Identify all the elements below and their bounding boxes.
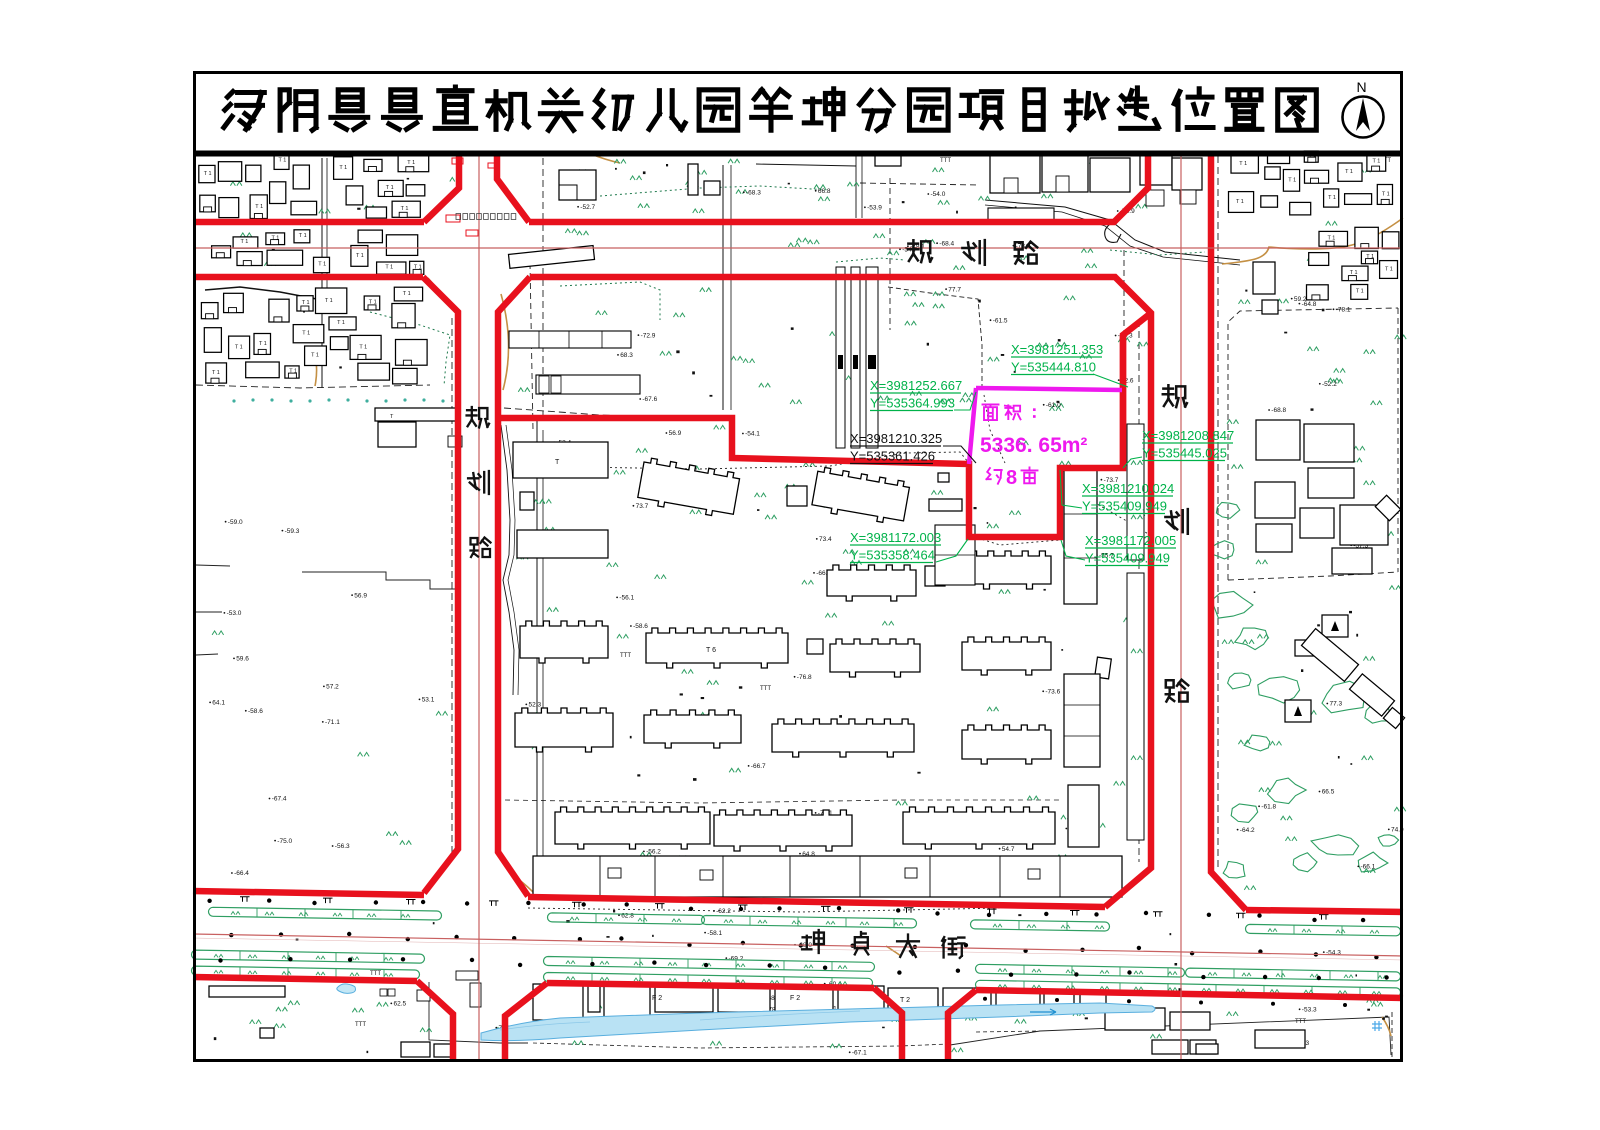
svg-text:-56.1: -56.1 bbox=[619, 595, 634, 602]
svg-text:-52.2: -52.2 bbox=[1322, 381, 1337, 388]
svg-text:77.7: 77.7 bbox=[948, 286, 961, 293]
svg-text:TTT: TTT bbox=[355, 1022, 366, 1028]
svg-text:57.2: 57.2 bbox=[326, 684, 339, 691]
svg-text:-76.8: -76.8 bbox=[797, 674, 812, 681]
svg-text:T 1: T 1 bbox=[299, 233, 307, 239]
svg-text:T 1: T 1 bbox=[325, 298, 333, 304]
svg-text:56.9: 56.9 bbox=[354, 592, 367, 599]
svg-text:T 1: T 1 bbox=[337, 320, 345, 326]
svg-text:-54.0: -54.0 bbox=[931, 191, 946, 198]
svg-text:-71.1: -71.1 bbox=[325, 719, 340, 726]
svg-text:T 1: T 1 bbox=[359, 345, 367, 351]
svg-text:T 1: T 1 bbox=[311, 353, 319, 359]
svg-text:-59.3: -59.3 bbox=[285, 528, 300, 535]
svg-text:-53.3: -53.3 bbox=[1302, 1007, 1317, 1014]
svg-text:66.8: 66.8 bbox=[818, 188, 831, 195]
svg-text:-67.1: -67.1 bbox=[852, 1050, 867, 1057]
svg-text:T 6: T 6 bbox=[706, 647, 716, 654]
svg-text:T 1: T 1 bbox=[1239, 161, 1247, 167]
svg-text:T 1: T 1 bbox=[318, 262, 326, 268]
svg-text:-68.3: -68.3 bbox=[746, 190, 761, 197]
svg-text:T 1: T 1 bbox=[1328, 236, 1336, 242]
svg-text:73.7: 73.7 bbox=[636, 503, 649, 510]
svg-text:5336. 65m²: 5336. 65m² bbox=[980, 434, 1087, 457]
svg-text:T 1: T 1 bbox=[386, 185, 394, 191]
svg-text:T 1: T 1 bbox=[1385, 266, 1393, 272]
svg-text:Y=535358.464: Y=535358.464 bbox=[850, 548, 935, 563]
svg-text:-68.4: -68.4 bbox=[939, 240, 954, 247]
svg-text:T 1: T 1 bbox=[279, 157, 287, 163]
svg-text:T 1: T 1 bbox=[235, 345, 243, 351]
svg-text:T 1: T 1 bbox=[401, 206, 409, 212]
svg-text:-78.1: -78.1 bbox=[1336, 307, 1351, 314]
svg-text:-59.0: -59.0 bbox=[228, 519, 243, 526]
svg-text:F 2: F 2 bbox=[790, 995, 800, 1002]
svg-text:-68.8: -68.8 bbox=[1271, 407, 1286, 414]
svg-text:F 2: F 2 bbox=[652, 995, 662, 1002]
svg-text:X=3981210.325: X=3981210.325 bbox=[850, 431, 942, 446]
svg-text:T 1: T 1 bbox=[1236, 199, 1244, 205]
svg-text:-66.1: -66.1 bbox=[1361, 864, 1376, 871]
svg-text:-58.6: -58.6 bbox=[248, 708, 263, 715]
svg-text:Y=535444.810: Y=535444.810 bbox=[1011, 360, 1096, 375]
svg-text:Y=535409.949: Y=535409.949 bbox=[1082, 499, 1167, 514]
svg-text:T 1: T 1 bbox=[259, 341, 267, 347]
svg-text:-56.3: -56.3 bbox=[335, 843, 350, 850]
svg-text:N: N bbox=[1357, 79, 1367, 95]
svg-text:T 1: T 1 bbox=[255, 204, 263, 210]
svg-text:X=3981251.353: X=3981251.353 bbox=[1011, 342, 1103, 357]
svg-text:64.1: 64.1 bbox=[212, 700, 225, 707]
svg-text:X=3981252.667: X=3981252.667 bbox=[870, 378, 962, 393]
svg-text:TTT: TTT bbox=[940, 158, 951, 164]
svg-text:77.3: 77.3 bbox=[1330, 701, 1343, 708]
svg-text:-61.5: -61.5 bbox=[993, 317, 1008, 324]
svg-text:T 1: T 1 bbox=[1382, 192, 1390, 198]
svg-text:X=3981172.003: X=3981172.003 bbox=[850, 530, 941, 545]
svg-text:-75.0: -75.0 bbox=[277, 838, 292, 845]
svg-text:T 1: T 1 bbox=[302, 331, 310, 337]
svg-text:T 1: T 1 bbox=[1288, 178, 1296, 184]
svg-text:-72.9: -72.9 bbox=[641, 332, 656, 339]
svg-text:T 1: T 1 bbox=[204, 171, 212, 177]
svg-text:T 1: T 1 bbox=[385, 265, 393, 271]
svg-text:T 1: T 1 bbox=[1373, 159, 1381, 165]
svg-text:-67.4: -67.4 bbox=[272, 796, 287, 803]
svg-text:-64.8: -64.8 bbox=[1302, 301, 1317, 308]
svg-text:Y=535445.025: Y=535445.025 bbox=[1142, 446, 1227, 461]
svg-text:TTT: TTT bbox=[370, 971, 381, 977]
svg-text:TTT: TTT bbox=[1295, 1019, 1306, 1025]
svg-text:-61.8: -61.8 bbox=[1261, 804, 1276, 811]
svg-text:-62.2: -62.2 bbox=[716, 908, 731, 915]
svg-text:T 1: T 1 bbox=[403, 291, 411, 297]
svg-text:X=3981172.005: X=3981172.005 bbox=[1085, 533, 1176, 548]
svg-text:66.5: 66.5 bbox=[1322, 789, 1335, 796]
svg-text:53.1: 53.1 bbox=[422, 697, 435, 704]
svg-text:T 1: T 1 bbox=[1356, 289, 1364, 295]
svg-text:-56.2: -56.2 bbox=[646, 849, 661, 856]
svg-text:T 1: T 1 bbox=[356, 253, 364, 259]
svg-text:TTT: TTT bbox=[620, 653, 631, 659]
svg-text:Y=535361.426: Y=535361.426 bbox=[850, 449, 935, 464]
svg-text:T 1: T 1 bbox=[339, 165, 347, 171]
svg-text:T 2: T 2 bbox=[900, 997, 910, 1004]
svg-text:T 1: T 1 bbox=[1328, 195, 1336, 201]
svg-text:T: T bbox=[555, 459, 560, 466]
svg-text:52.3: 52.3 bbox=[529, 702, 542, 709]
svg-text:-66.7: -66.7 bbox=[751, 763, 766, 770]
svg-text:X=3981210.024: X=3981210.024 bbox=[1082, 481, 1174, 496]
svg-text:73.4: 73.4 bbox=[819, 536, 832, 543]
svg-text:68.3: 68.3 bbox=[620, 352, 633, 359]
svg-text:T 1: T 1 bbox=[407, 160, 415, 166]
svg-text:54.7: 54.7 bbox=[1002, 846, 1015, 853]
svg-text:T 1: T 1 bbox=[212, 370, 220, 376]
svg-text:-58.1: -58.1 bbox=[707, 930, 722, 937]
svg-text:62.5: 62.5 bbox=[394, 1001, 407, 1008]
svg-text:8: 8 bbox=[1006, 467, 1017, 489]
svg-text:T 1: T 1 bbox=[1345, 169, 1353, 175]
svg-text:-53.0: -53.0 bbox=[227, 610, 242, 617]
svg-text:-64.2: -64.2 bbox=[1240, 827, 1255, 834]
svg-text:59.6: 59.6 bbox=[236, 656, 249, 663]
svg-text:-58.6: -58.6 bbox=[633, 623, 648, 630]
svg-text:-73.6: -73.6 bbox=[1045, 689, 1060, 696]
svg-text:-54.1: -54.1 bbox=[745, 431, 760, 438]
svg-text:-66.4: -66.4 bbox=[234, 870, 249, 877]
svg-text:56.9: 56.9 bbox=[669, 430, 682, 437]
svg-text:T 1: T 1 bbox=[241, 239, 249, 245]
svg-text:-61.0: -61.0 bbox=[1046, 402, 1061, 409]
svg-text:X=3981208.847: X=3981208.847 bbox=[1142, 428, 1234, 443]
svg-text:T 1: T 1 bbox=[302, 300, 310, 306]
svg-text:62.8: 62.8 bbox=[621, 912, 634, 919]
svg-text:-67.6: -67.6 bbox=[642, 396, 657, 403]
svg-text:-52.7: -52.7 bbox=[580, 204, 595, 211]
svg-text:Y=535409.949: Y=535409.949 bbox=[1085, 551, 1170, 566]
svg-text:Y=535364.993: Y=535364.993 bbox=[870, 396, 955, 411]
svg-text:TTT: TTT bbox=[760, 686, 771, 692]
svg-text:-53.9: -53.9 bbox=[867, 205, 882, 212]
